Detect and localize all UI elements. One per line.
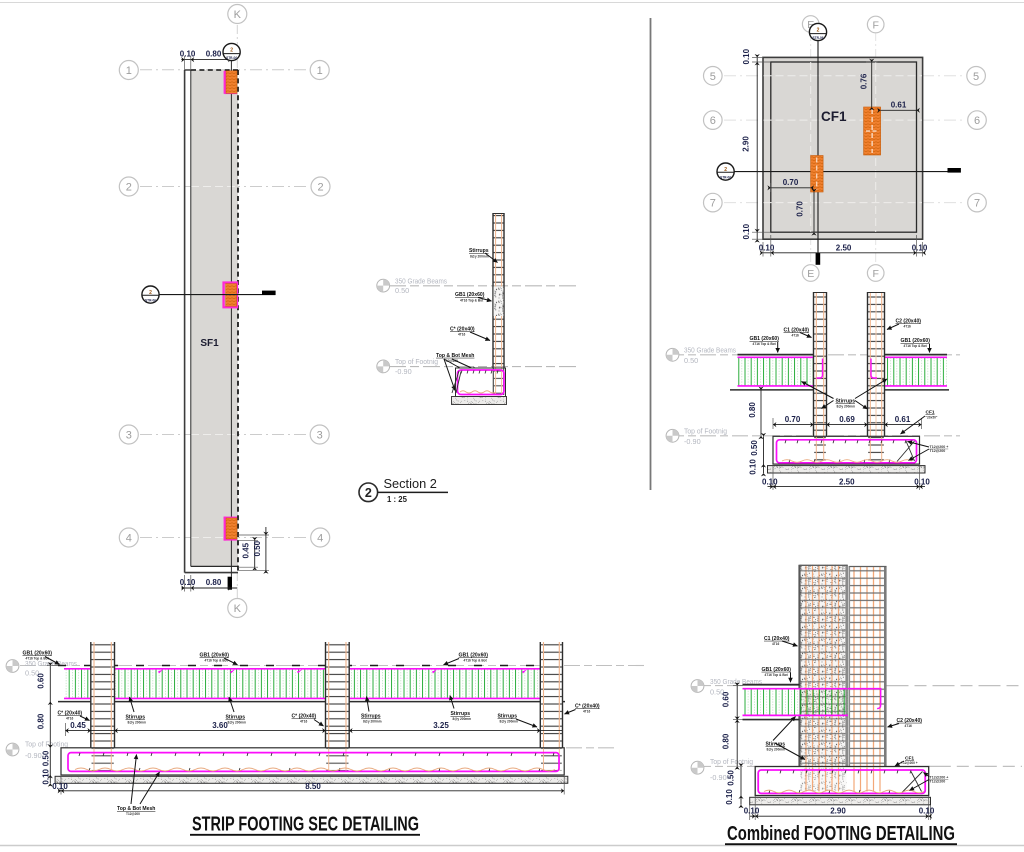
svg-text:350 Grade Beams: 350 Grade Beams xyxy=(395,276,447,285)
svg-text:2: 2 xyxy=(365,486,372,500)
svg-text:0.50: 0.50 xyxy=(750,440,759,456)
svg-text:Top & Bot Mesh: Top & Bot Mesh xyxy=(436,353,474,359)
svg-text:0.60: 0.60 xyxy=(37,673,46,689)
svg-text:Top of Footing: Top of Footing xyxy=(25,740,68,749)
svg-text:0.50: 0.50 xyxy=(253,540,262,556)
svg-text:2: 2 xyxy=(149,290,152,296)
svg-text:4T16: 4T16 xyxy=(458,333,465,337)
svg-text:-0.90: -0.90 xyxy=(684,437,701,446)
svg-text:4T16: 4T16 xyxy=(792,333,799,337)
svg-text:0.10: 0.10 xyxy=(52,782,68,791)
svg-text:4T16 Top & Bot: 4T16 Top & Bot xyxy=(904,344,928,348)
svg-text:8@y 200mm: 8@y 200mm xyxy=(500,720,519,724)
svg-text:Top of Footnig: Top of Footnig xyxy=(684,427,727,436)
svg-text:6: 6 xyxy=(710,115,716,127)
svg-text:F: F xyxy=(872,19,878,31)
svg-text:T12@200: T12@200 xyxy=(930,780,946,784)
svg-text:0.45: 0.45 xyxy=(70,721,86,730)
svg-text:0.70: 0.70 xyxy=(795,201,804,217)
svg-text:3: 3 xyxy=(317,430,323,442)
svg-text:0.10: 0.10 xyxy=(749,459,758,475)
svg-text:0.50: 0.50 xyxy=(41,750,50,766)
svg-text:1: 1 xyxy=(317,65,323,77)
svg-text:5: 5 xyxy=(973,71,979,83)
svg-text:0.60: 0.60 xyxy=(722,691,731,707)
svg-text:2.50: 2.50 xyxy=(839,477,855,486)
svg-text:0.50: 0.50 xyxy=(727,770,736,786)
svg-text:0.10: 0.10 xyxy=(180,578,196,587)
svg-text:2.90: 2.90 xyxy=(742,136,751,152)
svg-text:-0.90: -0.90 xyxy=(395,367,412,376)
svg-text:0.10: 0.10 xyxy=(912,243,928,252)
svg-text:3.60: 3.60 xyxy=(212,721,228,730)
svg-text:0.10: 0.10 xyxy=(41,768,50,784)
svg-text:0.10: 0.10 xyxy=(742,48,751,64)
svg-text:Top of Footnig: Top of Footnig xyxy=(395,357,438,366)
svg-text:SF1: SF1 xyxy=(200,338,219,349)
svg-text:4T16: 4T16 xyxy=(905,724,912,728)
svg-text:8@y 200mm: 8@y 200mm xyxy=(228,721,247,725)
svg-text:2.90: 2.90 xyxy=(830,807,846,816)
svg-text:0.10: 0.10 xyxy=(919,807,935,816)
svg-text:0.10: 0.10 xyxy=(914,477,930,486)
svg-text:STRIP FOOTING SEC DETAILING: STRIP FOOTING SEC DETAILING xyxy=(192,813,419,836)
svg-text:0.10: 0.10 xyxy=(180,50,196,59)
svg-text:4T16: 4T16 xyxy=(583,709,590,713)
svg-text:-0.90: -0.90 xyxy=(25,751,42,760)
svg-text:8@y 200mm: 8@y 200mm xyxy=(767,747,786,751)
svg-text:350 Grade Beams: 350 Grade Beams xyxy=(684,346,736,355)
svg-text:4T16 Top & Bot: 4T16 Top & Bot xyxy=(205,659,229,663)
svg-text:5: 5 xyxy=(710,71,716,83)
svg-text:0.10: 0.10 xyxy=(744,807,760,816)
svg-text:8@y 200mm: 8@y 200mm xyxy=(453,717,472,721)
svg-text:STR-06: STR-06 xyxy=(813,35,825,40)
svg-text:0.80: 0.80 xyxy=(722,733,731,749)
svg-text:T12@200: T12@200 xyxy=(126,812,140,816)
svg-text:4T16: 4T16 xyxy=(772,642,779,646)
svg-text:8@y 200mm: 8@y 200mm xyxy=(837,405,856,409)
svg-text:0.69: 0.69 xyxy=(839,415,855,424)
svg-text:8.50: 8.50 xyxy=(305,782,321,791)
svg-text:0.80: 0.80 xyxy=(206,50,222,59)
svg-text:STR-06: STR-06 xyxy=(226,55,238,60)
svg-text:1: 1 xyxy=(126,65,132,77)
svg-text:GB1 (20x60): GB1 (20x60) xyxy=(455,292,485,298)
svg-text:4T16 Top & Bot: 4T16 Top & Bot xyxy=(460,299,484,303)
svg-text:3.25: 3.25 xyxy=(433,721,449,730)
svg-text:0.50: 0.50 xyxy=(684,356,698,365)
svg-text:2: 2 xyxy=(317,182,323,194)
svg-text:0.76: 0.76 xyxy=(859,73,868,89)
svg-text:F: F xyxy=(872,268,878,280)
svg-text:0.80: 0.80 xyxy=(37,713,46,729)
svg-text:7: 7 xyxy=(974,198,980,210)
svg-text:0.10: 0.10 xyxy=(762,477,778,486)
svg-text:Section 2: Section 2 xyxy=(384,476,437,491)
svg-text:8@y 200mm: 8@y 200mm xyxy=(363,720,382,724)
svg-text:2.50: 2.50 xyxy=(836,243,852,252)
svg-text:0.10: 0.10 xyxy=(742,223,751,239)
svg-text:T12@200: T12@200 xyxy=(930,449,946,453)
svg-text:6: 6 xyxy=(974,115,980,127)
svg-text:C* (20x40): C* (20x40) xyxy=(450,326,475,332)
svg-text:K: K xyxy=(234,603,242,615)
svg-text:7: 7 xyxy=(710,198,716,210)
svg-text:2: 2 xyxy=(817,28,820,34)
svg-text:2: 2 xyxy=(126,182,132,194)
svg-text:Combined FOOTING DETAILING: Combined FOOTING DETAILING xyxy=(727,822,955,845)
svg-text:0.70: 0.70 xyxy=(783,178,799,187)
svg-text:4T16 Top & Bot: 4T16 Top & Bot xyxy=(765,673,789,677)
svg-text:4T16: 4T16 xyxy=(66,716,73,720)
svg-text:1 : 25: 1 : 25 xyxy=(387,495,408,504)
svg-text:4T16 Top & Bot: 4T16 Top & Bot xyxy=(464,659,488,663)
svg-text:4: 4 xyxy=(126,533,132,545)
svg-text:0.10: 0.10 xyxy=(725,789,734,805)
svg-text:0.61: 0.61 xyxy=(891,100,907,109)
svg-text:0.10: 0.10 xyxy=(759,243,775,252)
svg-text:0.50: 0.50 xyxy=(395,286,409,295)
svg-text:4T16: 4T16 xyxy=(904,324,911,328)
svg-text:"20x50": "20x50" xyxy=(926,416,938,420)
svg-text:8@y 200mm: 8@y 200mm xyxy=(470,255,489,259)
svg-text:0.61: 0.61 xyxy=(895,415,911,424)
svg-text:8@y 200mm: 8@y 200mm xyxy=(128,721,147,725)
svg-text:STR-06: STR-06 xyxy=(145,298,157,303)
svg-text:0.45: 0.45 xyxy=(242,542,251,558)
svg-text:4T16: 4T16 xyxy=(300,720,307,724)
svg-text:4T16 Top & Bot: 4T16 Top & Bot xyxy=(753,342,777,346)
svg-text:0.70: 0.70 xyxy=(785,415,801,424)
svg-text:-0.90: -0.90 xyxy=(710,773,727,782)
svg-text:0.80: 0.80 xyxy=(748,402,757,418)
svg-text:2: 2 xyxy=(724,167,727,173)
svg-text:CF1: CF1 xyxy=(821,109,847,124)
svg-text:2: 2 xyxy=(230,48,233,54)
svg-text:3: 3 xyxy=(126,430,132,442)
svg-text:0.80: 0.80 xyxy=(206,578,222,587)
svg-text:STR-06: STR-06 xyxy=(720,175,732,180)
svg-text:K: K xyxy=(234,9,242,21)
svg-text:Top of Footnig: Top of Footnig xyxy=(710,757,753,766)
svg-text:E: E xyxy=(807,268,814,280)
svg-text:4: 4 xyxy=(317,533,323,545)
